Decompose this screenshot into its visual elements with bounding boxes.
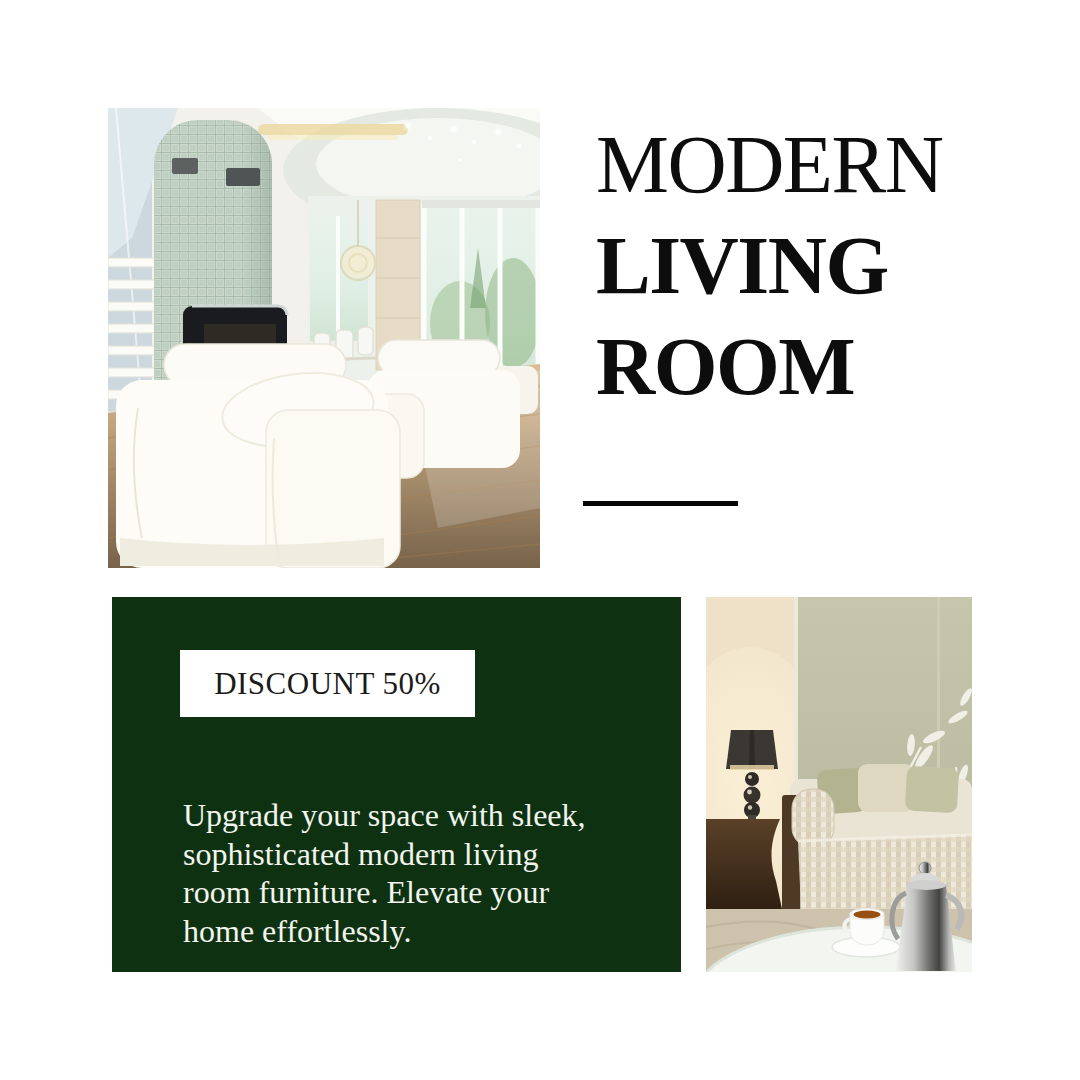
social-post-canvas: MODERN LIVING ROOM DISCOUNT 50% Upgrade … bbox=[0, 0, 1080, 1080]
discount-badge-label: DISCOUNT 50% bbox=[214, 666, 441, 702]
promo-body-text: Upgrade your space with sleek, sophistic… bbox=[183, 796, 653, 950]
title-line-room: ROOM bbox=[596, 316, 942, 417]
living-room-photo-art bbox=[108, 108, 540, 568]
title-line-living: LIVING bbox=[596, 215, 942, 316]
discount-badge: DISCOUNT 50% bbox=[180, 650, 475, 717]
title-underline-rule bbox=[583, 501, 738, 506]
sofa-photo-art bbox=[706, 597, 972, 972]
promo-body-line: home effortlessly. bbox=[183, 912, 653, 951]
living-room-photo bbox=[108, 108, 540, 568]
promo-body-line: room furniture. Elevate your bbox=[183, 873, 653, 912]
post-title: MODERN LIVING ROOM bbox=[596, 114, 942, 417]
promo-panel: DISCOUNT 50% Upgrade your space with sle… bbox=[112, 597, 681, 972]
promo-body-line: sophisticated modern living bbox=[183, 835, 653, 874]
promo-body-line: Upgrade your space with sleek, bbox=[183, 796, 653, 835]
side-table bbox=[706, 819, 782, 909]
sofa-detail-photo bbox=[706, 597, 972, 972]
title-line-modern: MODERN bbox=[596, 114, 942, 215]
